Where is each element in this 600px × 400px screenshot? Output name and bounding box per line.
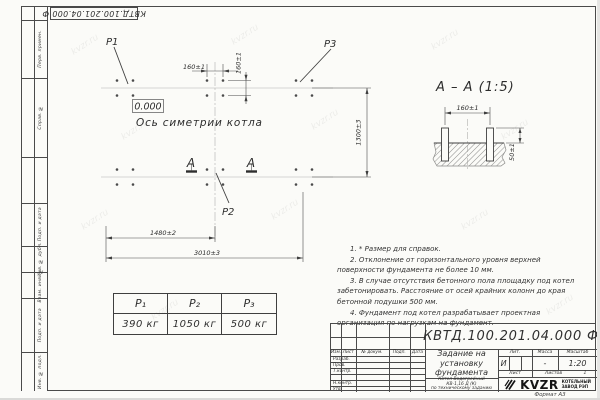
loads-table-value-p1: 390 кг [114,314,168,334]
col-izm: Изм. [331,349,341,356]
section-letter-left: А [186,156,195,170]
company-subtitle: КОТЕЛЬНЫЙ ЗАВОД РЭП [562,380,591,389]
foundation-bolt-left [442,128,449,161]
note-1: 1. * Размер для справок. [337,244,589,255]
company-subtitle-line: ЗАВОД РЭП [562,385,591,390]
mass-label: Масса [532,349,558,356]
lit-value: И [498,356,509,370]
mass-value: - [532,356,558,370]
col-podp: Подп. [389,349,411,356]
coil-logo-icon [504,378,517,391]
note-2: 2. Отклонение от горизонтального уровня … [337,255,589,276]
title-block-designation: КВТД.100.201.04.000 Ф [425,324,597,349]
sheets-value: 1 [579,370,591,377]
loads-table-value-p3: 500 кг [222,314,276,334]
document-title-line: Задание на [437,349,486,358]
col-data: Дата [410,349,425,356]
technical-notes: 1. * Размер для справок. 2. Отклонение о… [337,244,589,329]
dim-mid-span: 1480±2 [150,229,176,237]
scale-label: Масштаб [558,349,597,356]
col-ndokum: № докум. [356,349,389,356]
sheet-label: Лист [498,370,532,377]
dim-row-spacing: 1300±3 [355,119,363,145]
company-logo-text: KVZR [520,378,559,392]
loads-table-header-p3: P₃ [222,294,276,314]
plan-centerlines [101,62,333,242]
loads-table-header-p2: P₂ [168,294,222,314]
section-view-title: А – А (1:5) [435,80,515,95]
document-title: Задание на установку фундамента [425,349,498,378]
dim-bolt-vertical: 160±1 [235,52,243,74]
note-3: 3. В случае отсутствия бетонного пола пл… [337,276,589,308]
loads-table: P₁ P₂ P₃ 390 кг 1050 кг 500 кг [113,293,277,335]
point-label-p1: P1 [106,37,118,48]
point-label-p2: P2 [222,207,234,218]
product-name: Котел Водогрейный КВ-1,16 Д (К) по техни… [425,378,498,392]
loads-table-value-p2: 1050 кг [168,314,222,334]
title-block: КВТД.100.201.04.000 Ф Изм. Лист № докум.… [330,323,596,391]
dim-section-bolt-spacing: 160±1 [457,104,479,112]
dim-full-span: 3010±3 [194,249,220,257]
foundation-bolt-right [487,128,494,161]
section-letter-right: А [246,156,255,170]
sheets-label: Листов [532,370,575,377]
loads-table-header-p1: P₁ [114,294,168,314]
point-label-p3: P3 [324,39,336,50]
row-utv: Утв. [331,386,358,392]
company-cell: KVZR КОТЕЛЬНЫЙ ЗАВОД РЭП [498,377,597,392]
dim-bolt-horizontal: 160±1 [183,63,205,71]
plan-dimensions [106,64,371,262]
elevation-mark: 0.000 [134,102,161,113]
section-view [408,107,536,172]
lit-label: Лит. [498,349,532,356]
drawing-sheet: kvzr.ru kvzr.ru kvzr.ru kvzr.ru kvzr.ru … [0,0,600,400]
col-list: Лист [341,349,356,356]
anchor-bolt-points [116,79,314,186]
scale-value: 1:20 [558,356,597,370]
axis-caption: Ось симетрии котла [136,117,263,129]
product-name-line: по техническому заданию [431,387,492,392]
document-title-line: установку [440,359,483,368]
dim-section-protrusion: 50±1 [508,143,516,161]
